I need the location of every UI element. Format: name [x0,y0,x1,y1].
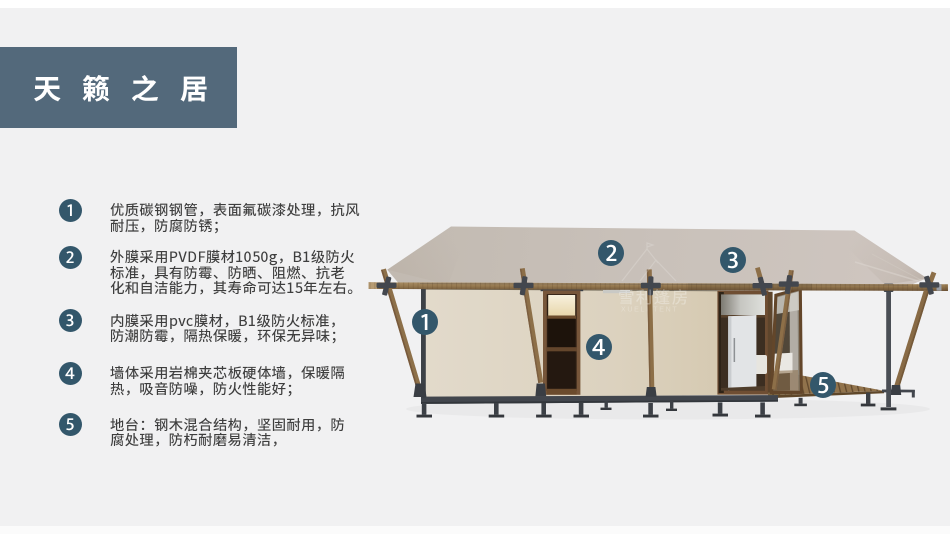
svg-text:雪利篷房: 雪利篷房 [618,284,690,308]
svg-text:XUELI TENT: XUELI TENT [621,307,678,314]
